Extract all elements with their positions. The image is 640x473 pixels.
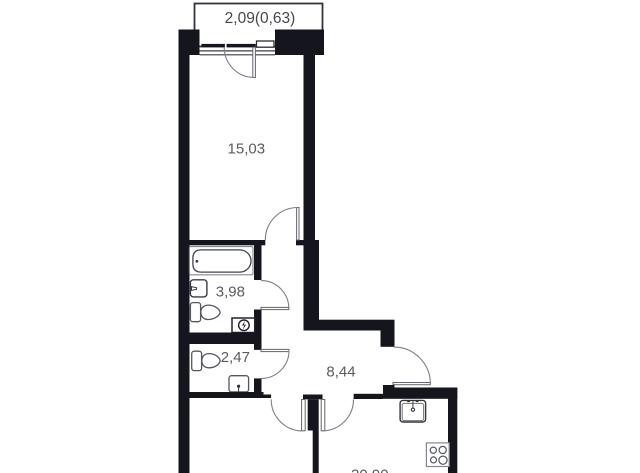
svg-text:20,90: 20,90 — [351, 466, 389, 473]
svg-text:3,98: 3,98 — [216, 283, 245, 300]
svg-text:8,44: 8,44 — [326, 364, 355, 381]
svg-text:2,47: 2,47 — [221, 349, 250, 366]
svg-text:15,03: 15,03 — [228, 141, 266, 158]
svg-text:2,09(0,63): 2,09(0,63) — [225, 10, 296, 27]
